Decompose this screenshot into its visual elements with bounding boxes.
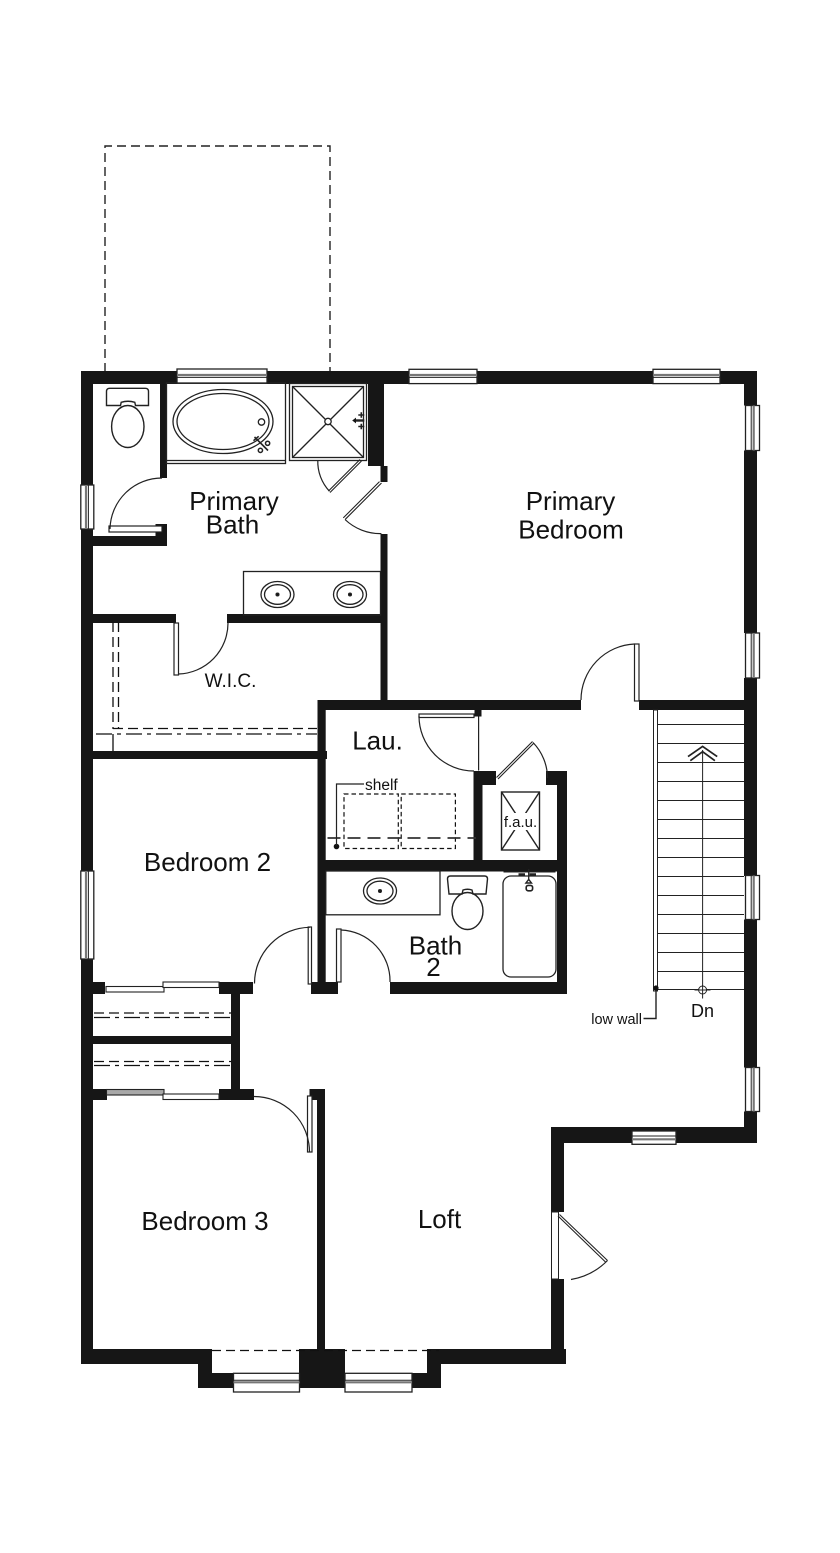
svg-text:Primary: Primary — [526, 486, 616, 516]
svg-text:Bedroom 3: Bedroom 3 — [141, 1206, 268, 1236]
svg-text:Dn: Dn — [691, 1001, 714, 1021]
svg-text:f.a.u.: f.a.u. — [504, 814, 537, 831]
svg-text:shelf: shelf — [365, 777, 398, 794]
svg-text:Lau.: Lau. — [352, 726, 403, 756]
svg-text:Bedroom: Bedroom — [518, 515, 624, 545]
svg-text:2: 2 — [426, 952, 440, 982]
svg-text:Bedroom 2: Bedroom 2 — [144, 847, 271, 877]
svg-text:Loft: Loft — [418, 1204, 462, 1234]
svg-text:Bath: Bath — [206, 510, 260, 540]
svg-text:low wall: low wall — [591, 1012, 642, 1028]
svg-text:W.I.C.: W.I.C. — [205, 671, 257, 692]
